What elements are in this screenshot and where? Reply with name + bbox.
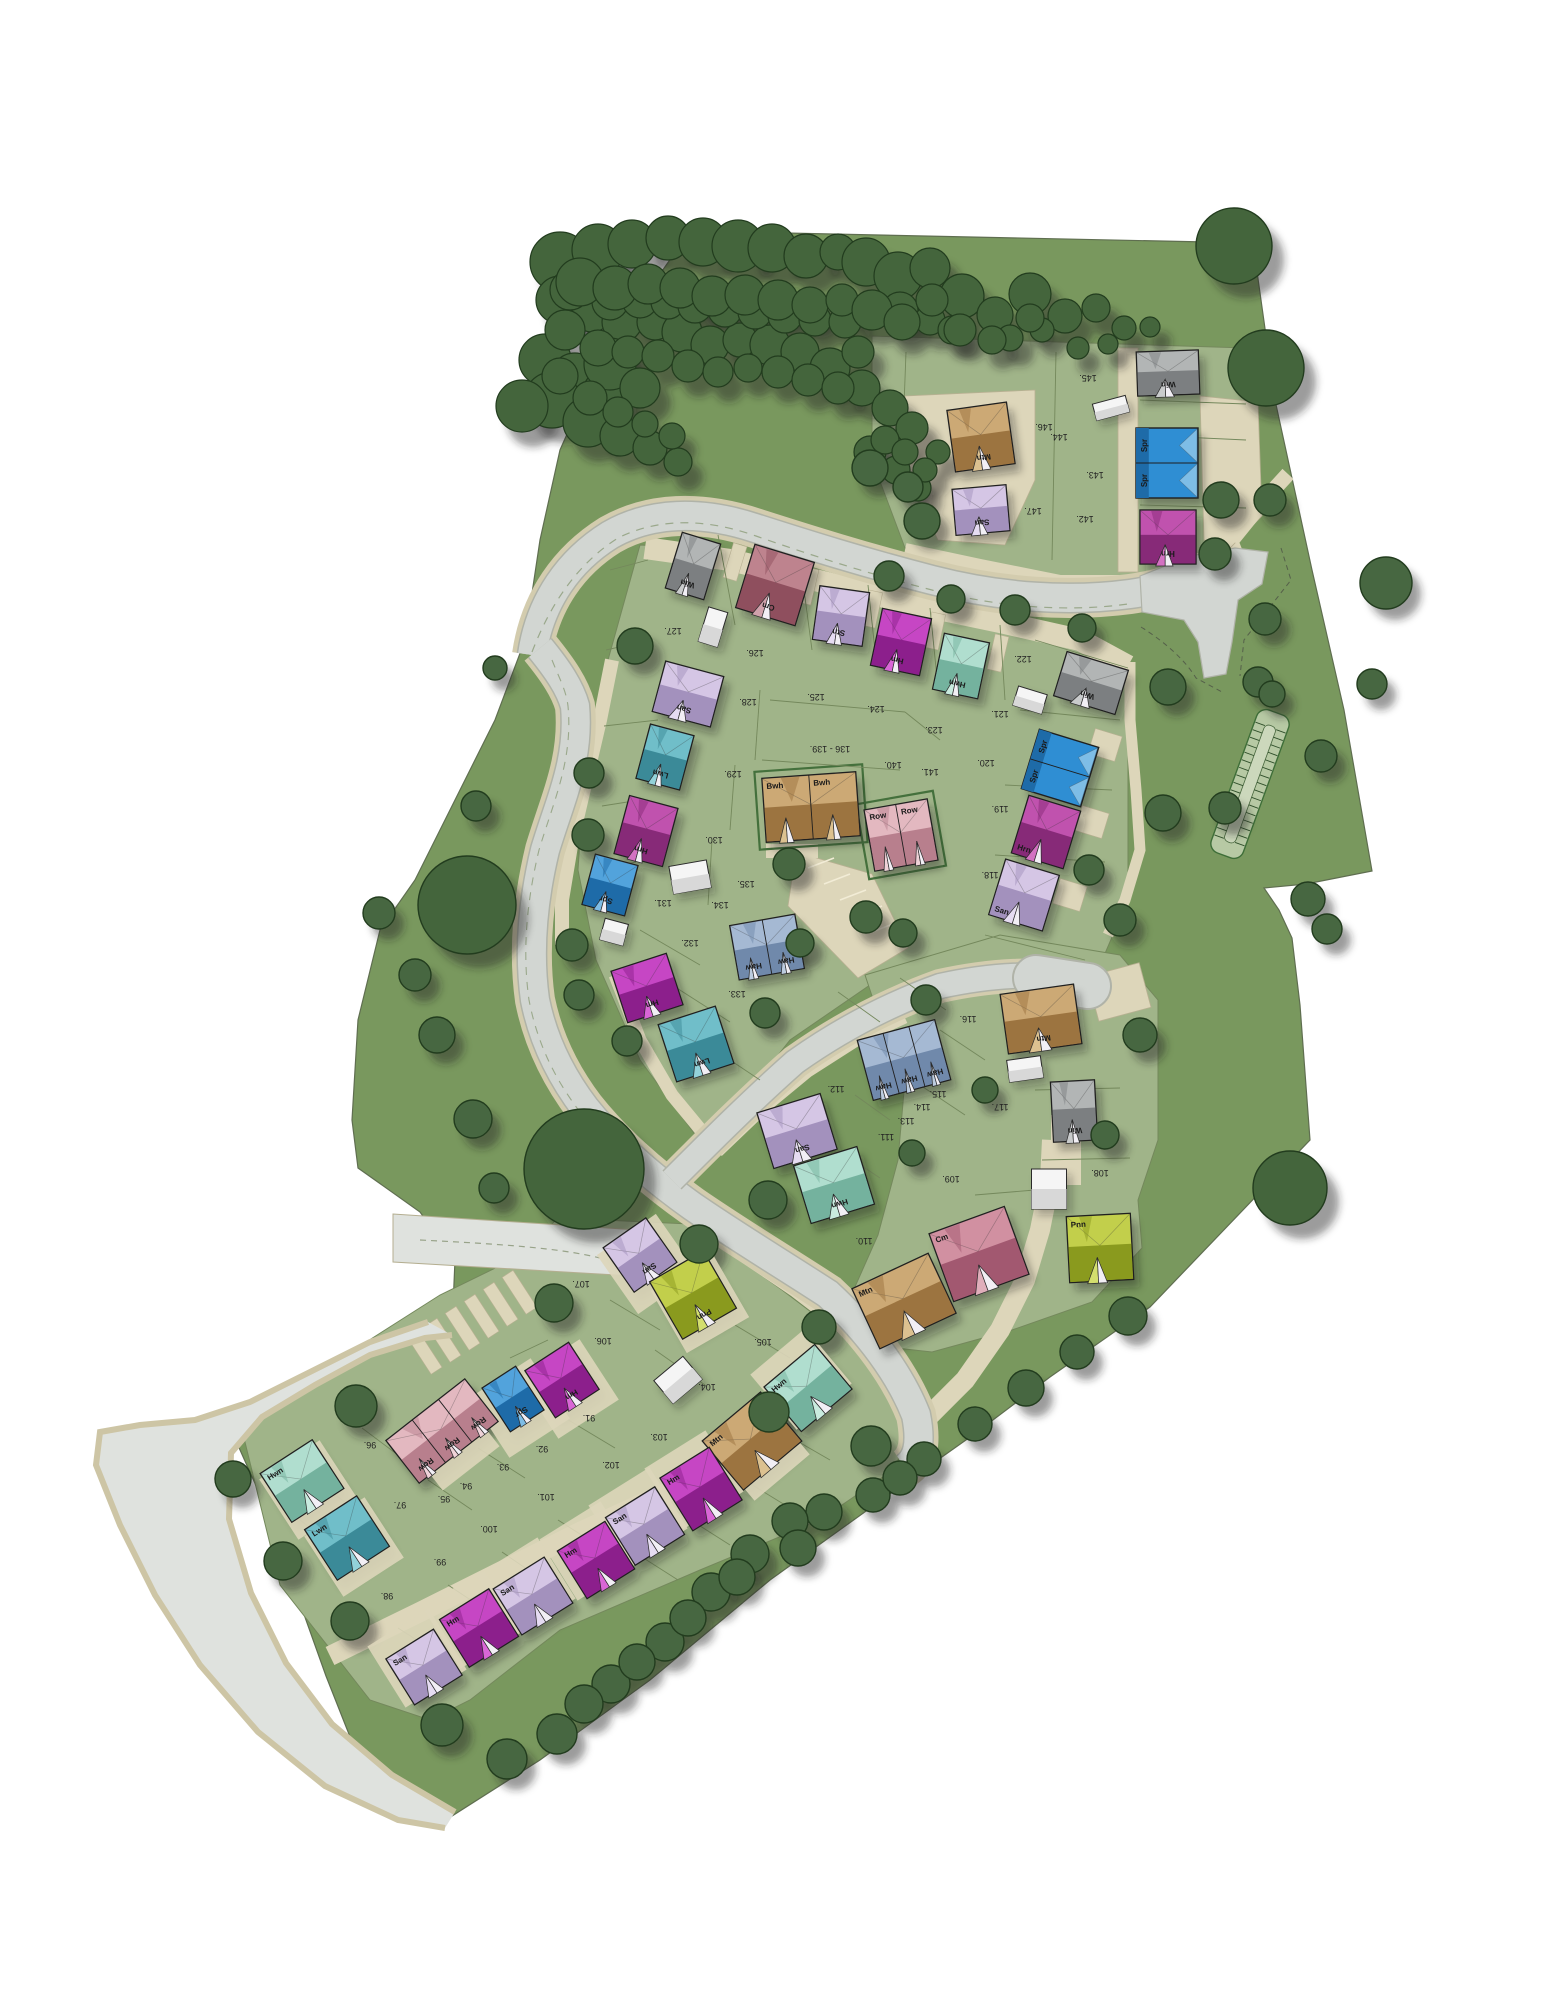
svg-text:Bwh: Bwh xyxy=(813,778,831,788)
svg-text:Win: Win xyxy=(1067,1126,1082,1136)
svg-text:94.: 94. xyxy=(460,1481,473,1491)
svg-text:130.: 130. xyxy=(705,835,723,845)
svg-text:100.: 100. xyxy=(480,1524,498,1534)
svg-text:99.: 99. xyxy=(434,1557,447,1567)
svg-text:117.: 117. xyxy=(992,1102,1009,1112)
svg-text:135.: 135. xyxy=(737,879,755,889)
svg-text:146.: 146. xyxy=(1035,422,1053,432)
svg-text:119.: 119. xyxy=(992,804,1009,814)
svg-text:Pnn: Pnn xyxy=(1071,1220,1087,1230)
svg-text:147.: 147. xyxy=(1024,506,1042,516)
svg-text:141.: 141. xyxy=(921,767,939,777)
svg-text:111.: 111. xyxy=(878,1132,894,1142)
svg-text:92.: 92. xyxy=(536,1444,549,1454)
svg-text:122.: 122. xyxy=(1014,654,1032,664)
svg-text:145.: 145. xyxy=(1079,373,1097,383)
svg-text:109.: 109. xyxy=(942,1174,960,1184)
svg-text:115.: 115. xyxy=(930,1089,947,1099)
svg-text:91.: 91. xyxy=(583,1413,596,1423)
svg-text:142.: 142. xyxy=(1076,514,1094,524)
svg-text:144.: 144. xyxy=(1050,432,1068,442)
svg-text:102.: 102. xyxy=(602,1460,620,1470)
svg-text:125.: 125. xyxy=(807,692,825,702)
svg-text:131.: 131. xyxy=(654,898,672,908)
svg-text:95.: 95. xyxy=(438,1494,451,1504)
svg-text:106.: 106. xyxy=(594,1336,612,1346)
svg-text:107.: 107. xyxy=(572,1279,590,1289)
svg-text:116.: 116. xyxy=(960,1014,977,1024)
svg-text:108.: 108. xyxy=(1091,1168,1109,1178)
svg-text:121.: 121. xyxy=(991,709,1009,719)
svg-text:96.: 96. xyxy=(364,1440,377,1450)
svg-text:132.: 132. xyxy=(681,938,699,948)
svg-text:143.: 143. xyxy=(1086,470,1104,480)
svg-text:Stn: Stn xyxy=(832,627,846,638)
svg-text:113.: 113. xyxy=(898,1116,915,1126)
svg-text:126.: 126. xyxy=(746,648,764,658)
svg-text:97.: 97. xyxy=(394,1500,407,1510)
svg-text:112.: 112. xyxy=(828,1084,845,1094)
svg-text:118.: 118. xyxy=(982,870,999,880)
svg-text:104.: 104. xyxy=(698,1382,716,1392)
svg-text:123.: 123. xyxy=(925,725,943,735)
svg-text:Spr: Spr xyxy=(1140,474,1149,487)
svg-text:136 - 139.: 136 - 139. xyxy=(810,744,851,754)
svg-text:Win: Win xyxy=(1161,380,1176,390)
svg-text:120.: 120. xyxy=(977,758,995,768)
svg-text:105.: 105. xyxy=(754,1337,772,1347)
svg-text:124.: 124. xyxy=(867,704,885,714)
svg-text:127.: 127. xyxy=(664,626,682,636)
svg-text:Hrn: Hrn xyxy=(1161,549,1175,558)
svg-text:101.: 101. xyxy=(537,1492,555,1502)
svg-text:98.: 98. xyxy=(381,1591,394,1601)
svg-text:103.: 103. xyxy=(650,1432,668,1442)
svg-text:110.: 110. xyxy=(856,1236,873,1246)
svg-text:140.: 140. xyxy=(884,760,902,770)
svg-text:Spr: Spr xyxy=(1140,439,1149,452)
svg-text:San: San xyxy=(974,517,990,527)
svg-text:Bwh: Bwh xyxy=(766,781,784,791)
svg-text:134.: 134. xyxy=(711,900,729,910)
svg-text:93.: 93. xyxy=(497,1462,510,1472)
svg-text:114.: 114. xyxy=(914,1102,931,1112)
svg-text:133.: 133. xyxy=(728,989,746,999)
svg-text:128.: 128. xyxy=(739,697,757,707)
svg-text:129.: 129. xyxy=(724,769,742,779)
